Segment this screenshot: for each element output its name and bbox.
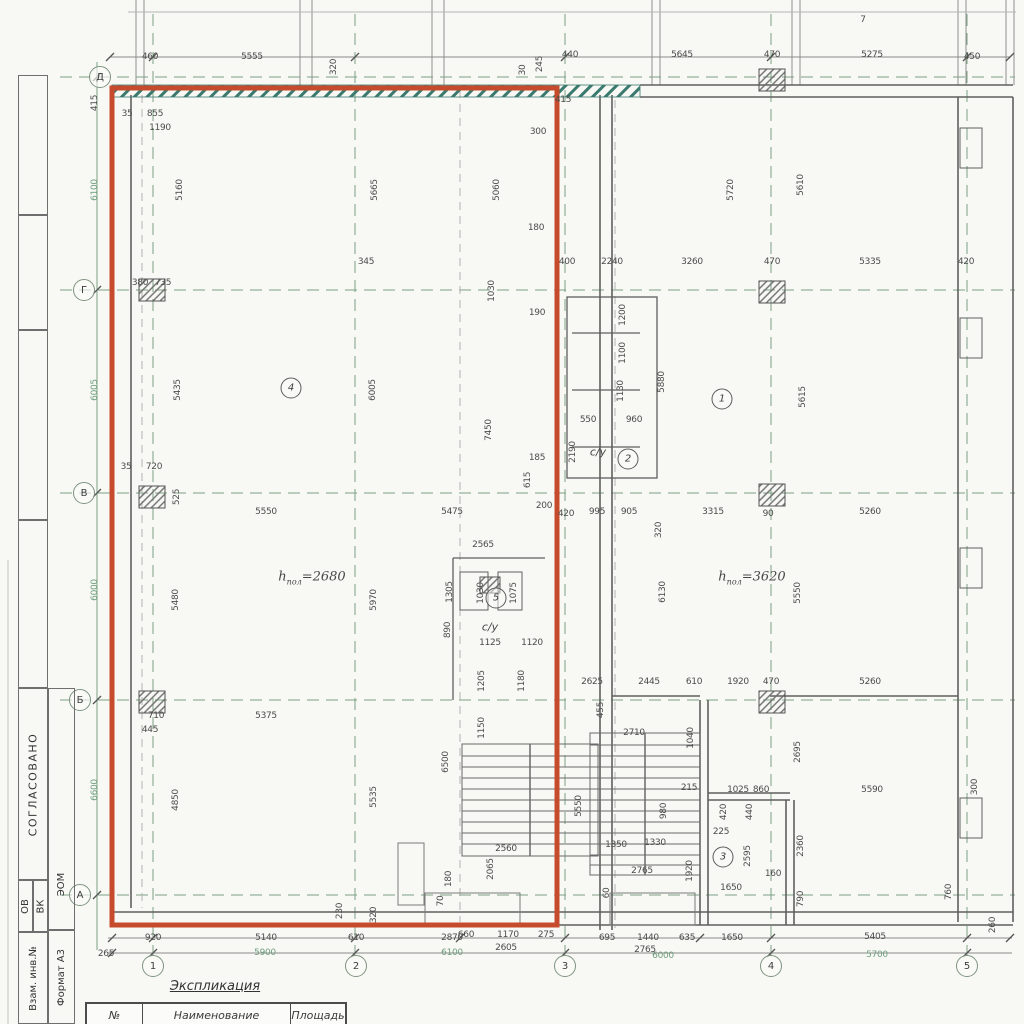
legend-col-name: Наименование — [143, 1004, 291, 1024]
titleblock-vk-cell: ВК — [33, 880, 48, 932]
upper-wall-stubs — [128, 0, 1016, 85]
ov-label: ОВ — [20, 899, 31, 914]
legend-col-area: Площадь — [291, 1004, 345, 1024]
walls — [112, 85, 1013, 930]
titleblock-ov-cell: ОВ — [18, 880, 33, 932]
structural-columns — [139, 69, 785, 713]
titleblock-stamp-cell: Взам. инв.№ — [18, 932, 48, 1024]
titleblock-approved-cell: СОГЛАСОВАНО — [18, 688, 48, 880]
titleblock-cell — [18, 330, 48, 520]
highlight-rectangle — [112, 88, 557, 925]
grid-axes — [60, 14, 1015, 955]
titleblock-cell — [18, 75, 48, 215]
titleblock-cell — [18, 215, 48, 330]
legend-title: Экспликация — [150, 979, 280, 994]
format-label: Формат А3 — [56, 949, 67, 1006]
vk-label: ВК — [35, 899, 46, 913]
titleblock-cell — [18, 520, 48, 688]
titleblock-eom-cell: ЭОМ — [48, 688, 75, 930]
legend-table: № Наименование Площадь — [85, 1002, 347, 1024]
floor-plan-scan: 4605555320302454405645470527545074154153… — [0, 0, 1024, 1024]
titleblock-format-cell: Формат А3 — [48, 930, 75, 1024]
aux-dashed-lines — [142, 90, 615, 928]
floor-plan-drawing — [0, 0, 1024, 1024]
eom-label: ЭОМ — [56, 872, 67, 895]
legend-col-number: № — [87, 1004, 143, 1024]
dimension-ticks — [93, 53, 1014, 957]
stamp-label: Взам. инв.№ — [28, 946, 39, 1011]
approved-label: СОГЛАСОВАНО — [27, 732, 40, 836]
staircases — [462, 733, 700, 875]
